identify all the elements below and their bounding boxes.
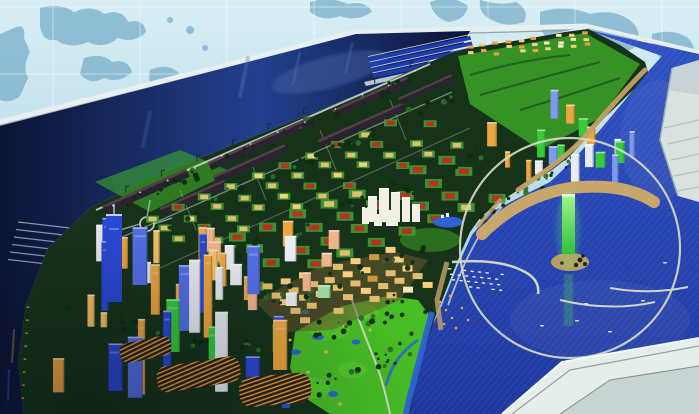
- photo-vignette: [0, 0, 699, 414]
- scene-svg: [0, 0, 699, 414]
- city-model-photo: [0, 0, 699, 414]
